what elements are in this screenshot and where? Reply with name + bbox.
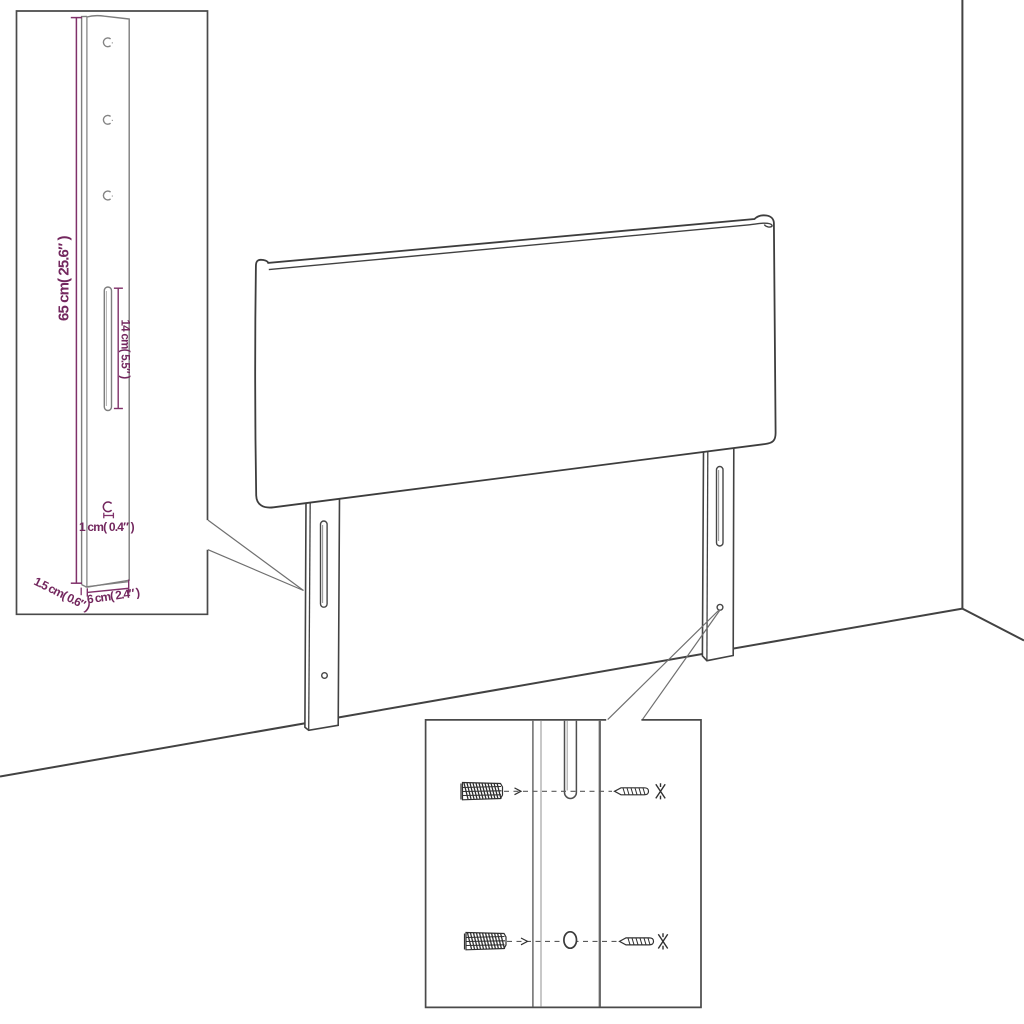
svg-text:14 cm( 5.5″ ): 14 cm( 5.5″ ) — [118, 320, 130, 380]
svg-text:65 cm( 25.6″ ): 65 cm( 25.6″ ) — [56, 235, 73, 321]
svg-text:1 cm( 0.4″ ): 1 cm( 0.4″ ) — [79, 520, 135, 534]
